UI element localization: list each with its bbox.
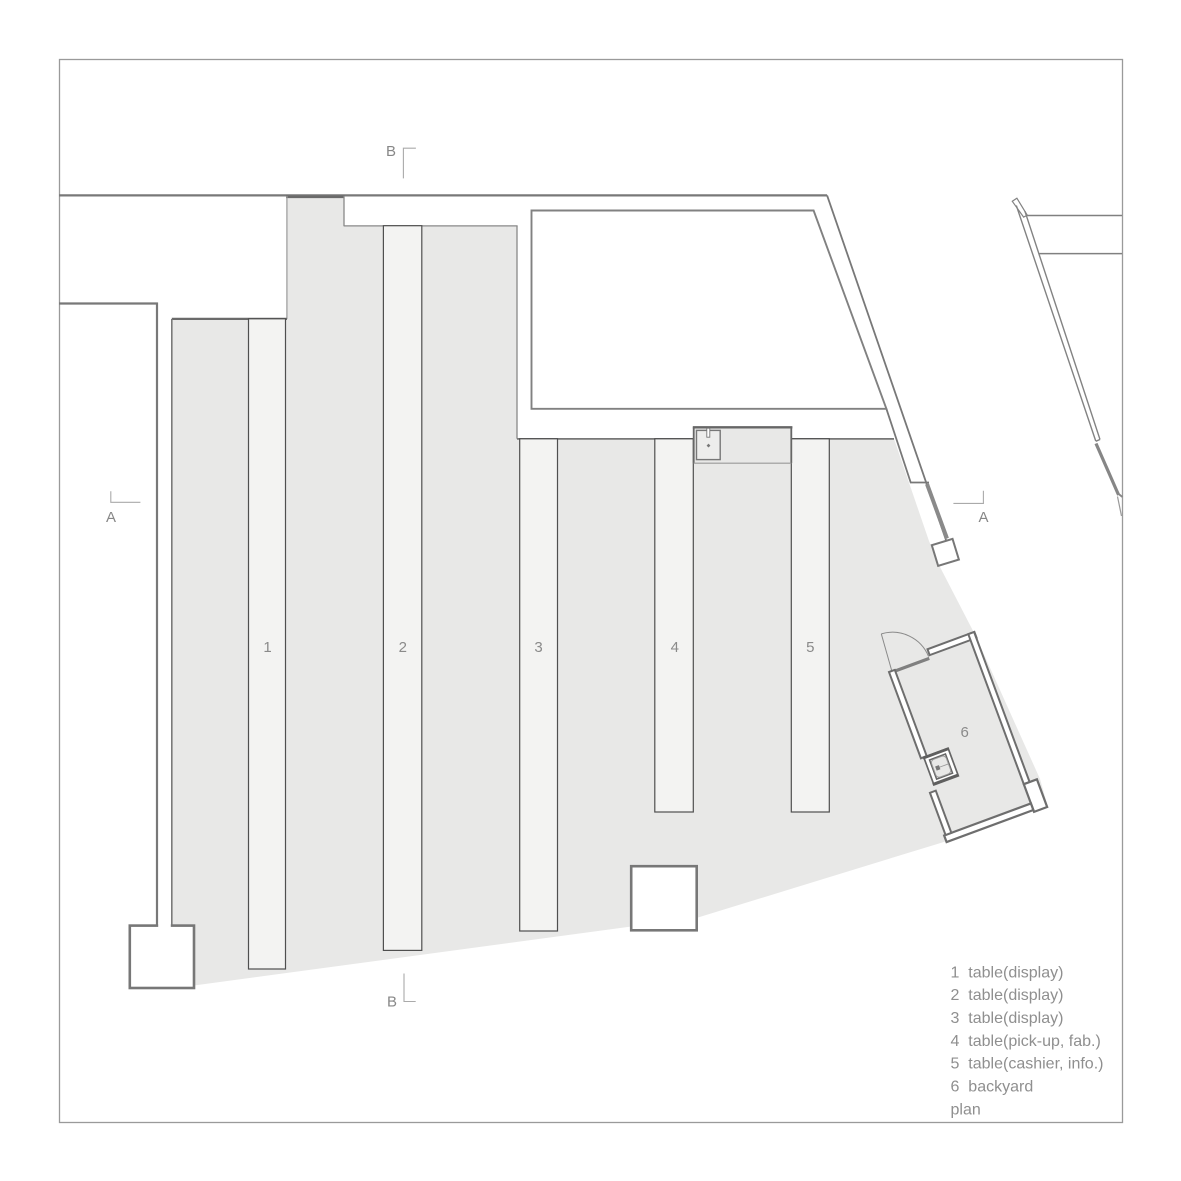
- svg-text:B: B: [386, 143, 396, 160]
- svg-text:B: B: [387, 994, 397, 1011]
- svg-text:A: A: [106, 509, 116, 526]
- svg-text:2: 2: [399, 639, 407, 656]
- svg-text:plan: plan: [951, 1102, 981, 1119]
- svg-text:1: 1: [263, 639, 271, 656]
- svg-text:3: 3: [534, 639, 542, 656]
- svg-text:2 table(display): 2 table(display): [951, 987, 1064, 1004]
- svg-text:5: 5: [806, 639, 814, 656]
- svg-text:5 table(cashier, info.): 5 table(cashier, info.): [951, 1056, 1104, 1073]
- svg-text:3 table(display): 3 table(display): [951, 1010, 1064, 1027]
- svg-text:6 backyard: 6 backyard: [951, 1078, 1034, 1095]
- svg-text:4: 4: [671, 639, 679, 656]
- svg-text:4 table(pick-up, fab.): 4 table(pick-up, fab.): [951, 1033, 1101, 1050]
- svg-text:6: 6: [961, 724, 969, 741]
- svg-text:1 table(display): 1 table(display): [951, 964, 1064, 981]
- svg-text:A: A: [978, 509, 988, 526]
